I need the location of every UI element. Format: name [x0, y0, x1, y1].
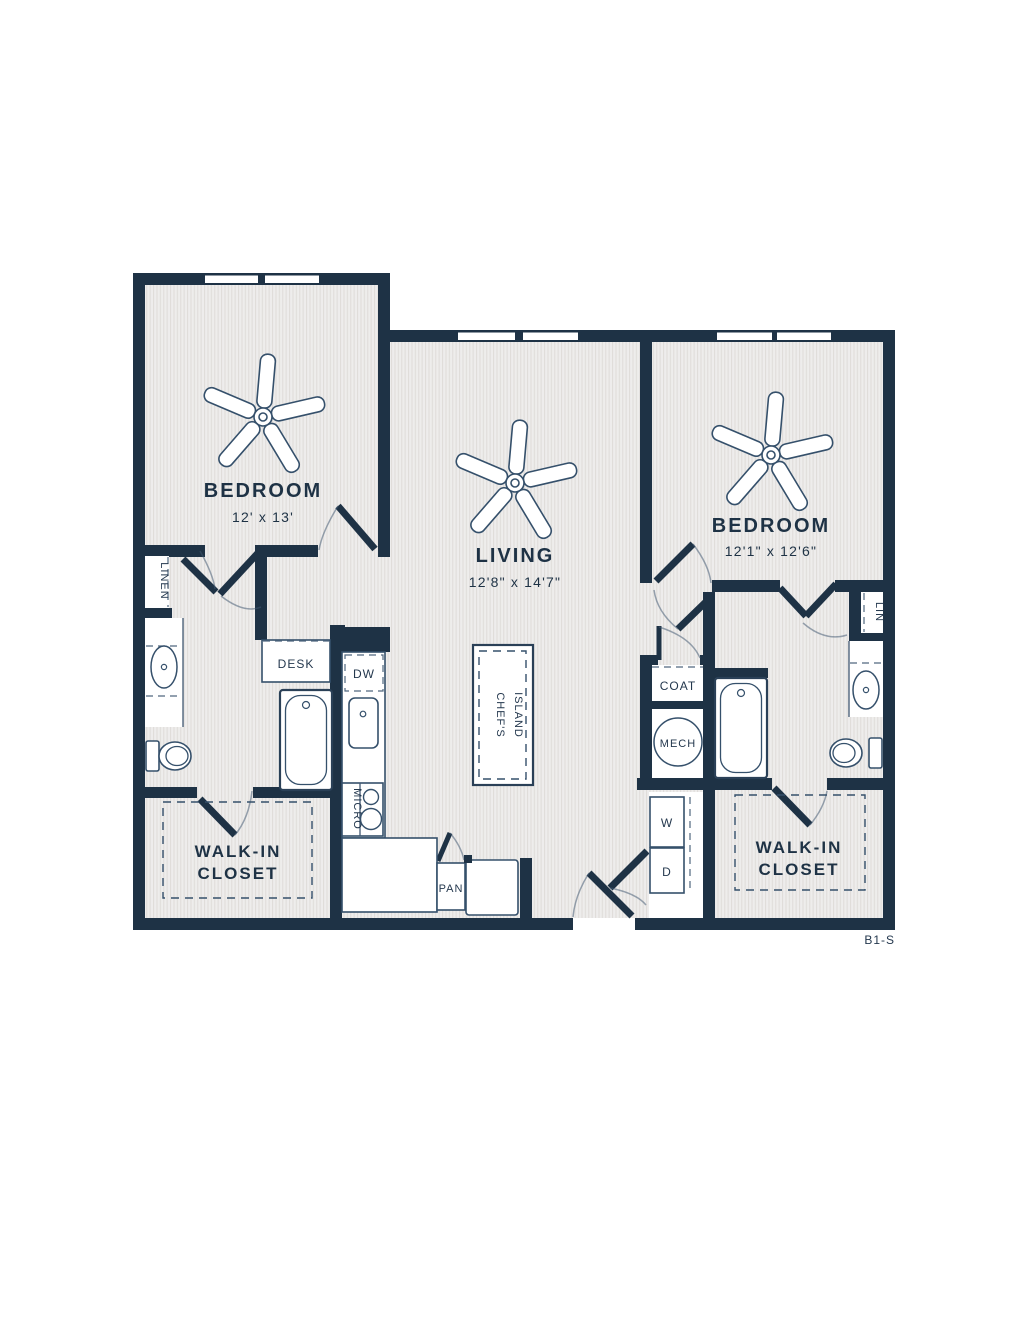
bedroom-left-dims: 12' x 13' [232, 509, 294, 525]
lin-label: LIN [873, 602, 885, 622]
washer-label: W [661, 816, 673, 830]
living-name: LIVING [476, 545, 555, 567]
desk: DESK [262, 640, 330, 682]
kitchen-sink-icon [349, 698, 378, 748]
vanity-right [849, 641, 883, 717]
bedroom-right-name: BEDROOM [712, 515, 830, 537]
window-icon [717, 333, 772, 341]
window-icon [205, 276, 258, 284]
walkin-closet-left-line1: WALK-IN [195, 842, 282, 861]
walkin-closet-left-line2: CLOSET [198, 864, 279, 883]
living-dims: 12'8" x 14'7" [469, 574, 561, 590]
vanity-left [145, 618, 183, 727]
bathtub-icon [715, 678, 767, 778]
island-label-line2: ISLAND [512, 692, 524, 738]
sink-icon [853, 671, 879, 709]
sink-icon [151, 646, 177, 688]
unit-code: B1-S [864, 933, 895, 947]
mech-closet: MECH [652, 709, 703, 778]
window-icon [777, 333, 831, 341]
walkin-closet-right-line1: WALK-IN [756, 838, 843, 857]
chefs-island: CHEF'S ISLAND [473, 645, 533, 785]
bathtub-icon [280, 690, 332, 790]
pantry: PAN [437, 863, 465, 910]
bedroom-right-dims: 12'1" x 12'6" [725, 543, 817, 559]
coat-label: COAT [660, 679, 696, 693]
toilet-icon [146, 741, 191, 771]
toilet-icon [830, 738, 882, 768]
coat-closet: COAT [652, 665, 703, 701]
desk-label: DESK [278, 657, 315, 671]
window-icon [458, 333, 515, 341]
window-icon [523, 333, 578, 341]
window-icon [265, 276, 319, 284]
mech-label: MECH [660, 738, 696, 750]
linen-label: LINEN [158, 562, 170, 599]
counter [342, 838, 437, 912]
washer-dryer: W D [649, 792, 703, 918]
fridge-icon [464, 855, 518, 915]
walkin-closet-right-line2: CLOSET [759, 860, 840, 879]
bedroom-left-name: BEDROOM [204, 480, 322, 502]
pan-label: PAN [439, 883, 464, 895]
lin-closet: LIN [861, 592, 885, 633]
range-micro: MICRO [342, 783, 383, 836]
island-label-line1: CHEF'S [494, 692, 506, 737]
floor-plan: DESK DW MICRO PAN [0, 0, 1032, 1336]
dryer-label: D [662, 865, 672, 879]
dw-label: DW [353, 667, 375, 681]
